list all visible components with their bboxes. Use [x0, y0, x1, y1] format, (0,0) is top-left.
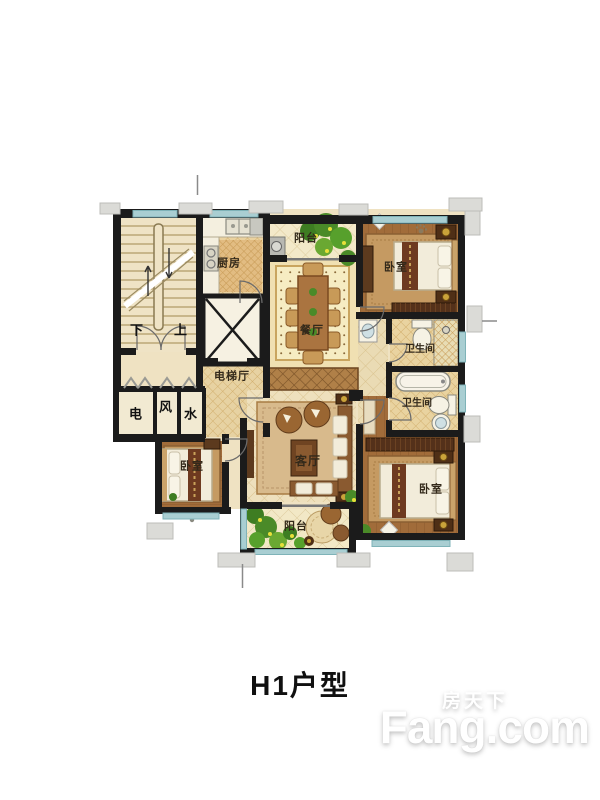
fang-watermark: 房天下 Fang.com: [380, 686, 595, 762]
tv-cabinet-icon: [247, 430, 254, 478]
room-label-bath-lower: 卫生间: [402, 399, 432, 409]
slider-door: [282, 505, 330, 508]
room-label-elevator-hall: 电梯厅: [214, 372, 250, 383]
fang-logo-en: Fang.com: [380, 700, 589, 754]
room-label-bedroom-top-right: 卧室: [384, 263, 408, 274]
room-label-bedroom-left: 卧室: [180, 462, 204, 473]
shaft-label-electric: 电: [129, 408, 143, 421]
chair-icon: [333, 525, 349, 541]
living-room-furniture: [247, 394, 352, 502]
toilet-icon: [429, 397, 449, 414]
stairs-down-label: 下: [130, 324, 144, 337]
room-label-balcony-top: 阳台: [294, 234, 318, 245]
shaft-label-water: 水: [184, 408, 198, 421]
stove-icon: [204, 246, 218, 271]
room-label-dining: 餐厅: [300, 326, 324, 337]
slider-door: [287, 258, 339, 261]
elevator-crossed-box: [203, 296, 262, 364]
armchair-icon: [276, 407, 302, 433]
room-label-bath-upper: 卫生间: [405, 345, 435, 355]
room-label-bedroom-bottom-right: 卧室: [419, 485, 443, 496]
dresser-icon: [364, 400, 375, 434]
floorplan-page: 阳台 厨房 卧室 餐厅 下 上 电梯厅 卫生间 卫生间 电 风 水 卧室 客厅 …: [0, 0, 600, 800]
room-label-kitchen: 厨房: [217, 259, 241, 270]
room-label-living: 客厅: [295, 455, 321, 467]
stairs-up-label: 上: [174, 324, 188, 337]
room-label-balcony-bottom: 阳台: [284, 522, 308, 533]
shaft-label-air: 风: [159, 401, 173, 414]
